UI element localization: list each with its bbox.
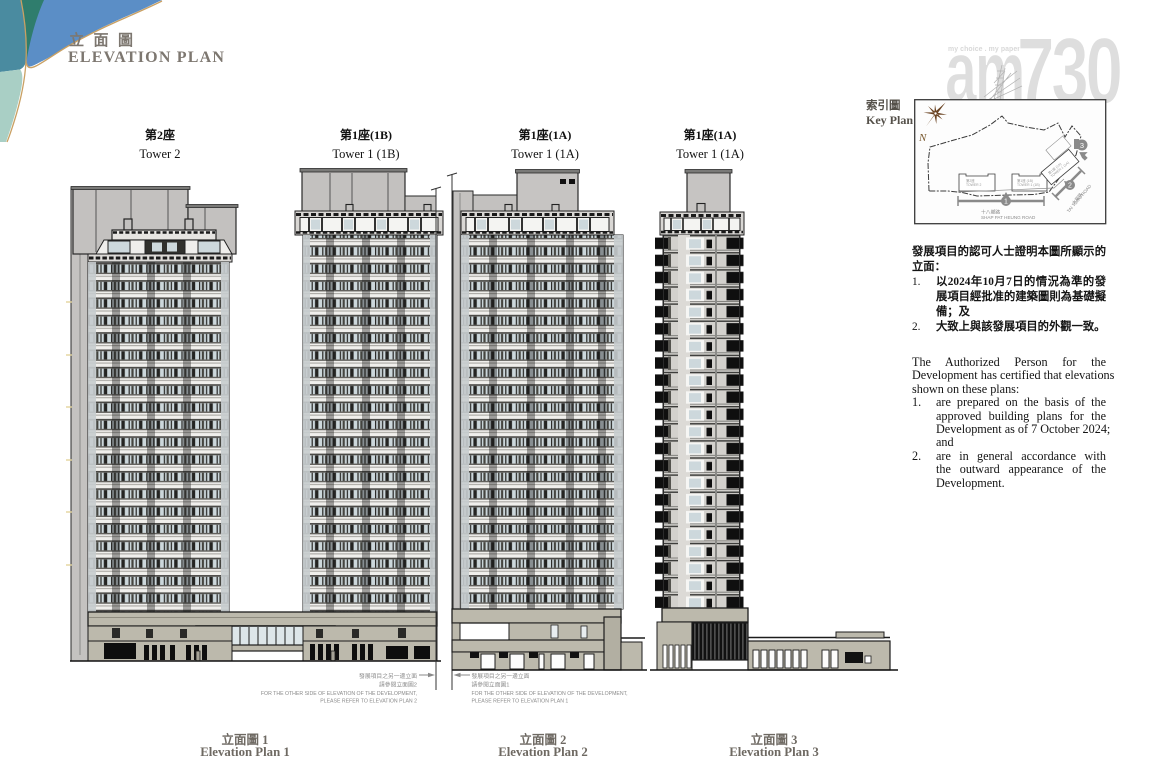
svg-text:請參閱立面圖1: 請參閱立面圖1 — [472, 681, 510, 689]
svg-text:發展項目之另一邊立面: 發展項目之另一邊立面 — [472, 672, 530, 680]
svg-text:FOR THE OTHER SIDE OF ELEVATIO: FOR THE OTHER SIDE OF ELEVATION OF THE D… — [261, 691, 417, 697]
svg-text:PLEASE REFER TO ELEVATION PLAN: PLEASE REFER TO ELEVATION PLAN 2 — [320, 699, 417, 705]
svg-text:發展項目之另一邊立面: 發展項目之另一邊立面 — [359, 672, 417, 680]
svg-text:請參閱立面圖2: 請參閱立面圖2 — [379, 681, 417, 689]
svg-text:PLEASE REFER TO ELEVATION PLAN: PLEASE REFER TO ELEVATION PLAN 1 — [472, 699, 569, 705]
svg-text:FOR THE OTHER SIDE OF ELEVATIO: FOR THE OTHER SIDE OF ELEVATION OF THE D… — [472, 691, 628, 697]
